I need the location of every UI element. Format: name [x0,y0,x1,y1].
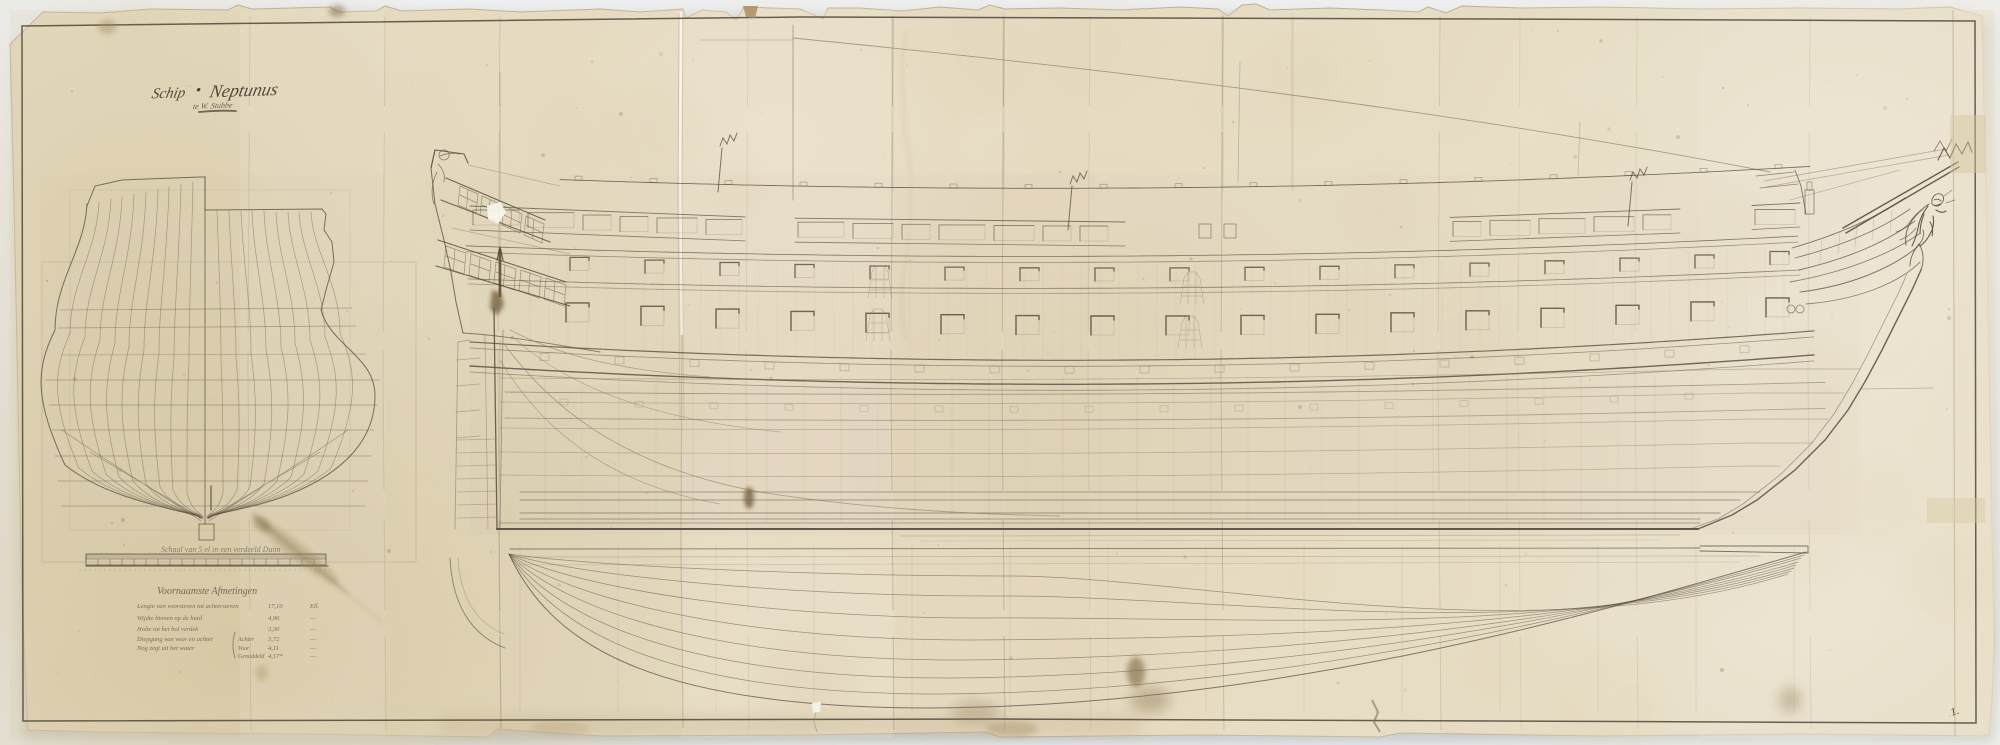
svg-text:Voornaamste Afmetingen: Voornaamste Afmetingen [157,586,257,597]
svg-text:Ell.: Ell. [309,603,320,610]
svg-text:Nog zegt uit het water: Nog zegt uit het water [136,645,195,652]
svg-text:Schip: Schip [150,84,187,102]
svg-text:Lengte van voorsteven tot acht: Lengte van voorsteven tot achtersteven [136,603,238,610]
svg-text:Neptunus: Neptunus [207,79,280,101]
svg-text:—: — [309,645,316,652]
svg-text:Gemiddeld: Gemiddeld [238,654,265,660]
svg-text:3,30: 3,30 [267,626,280,633]
svg-text:—: — [309,615,316,622]
svg-text:4,96: 4,96 [268,615,280,622]
svg-text:—: — [309,653,316,660]
svg-text:4,11: 4,11 [268,645,279,652]
svg-text:Holte tot het hol verdek: Holte tot het hol verdek [136,626,198,633]
svg-text:Diepgang van voor en achter: Diepgang van voor en achter [136,636,214,643]
svg-text:—: — [309,626,316,633]
svg-text:Schaal van 5 el in een verdeel: Schaal van 5 el in een verdeeld Duim [161,545,281,554]
svg-text:4,17*: 4,17* [268,653,283,660]
svg-text:3,72: 3,72 [267,636,280,643]
svg-text:Wijdte binnen op de huid: Wijdte binnen op de huid [137,615,203,622]
svg-text:te W. Stubbe: te W. Stubbe [192,101,234,111]
svg-text:Achter: Achter [237,637,255,643]
svg-text:17,10: 17,10 [268,603,283,610]
svg-text:Voor: Voor [238,646,250,652]
svg-text:—: — [309,636,316,643]
